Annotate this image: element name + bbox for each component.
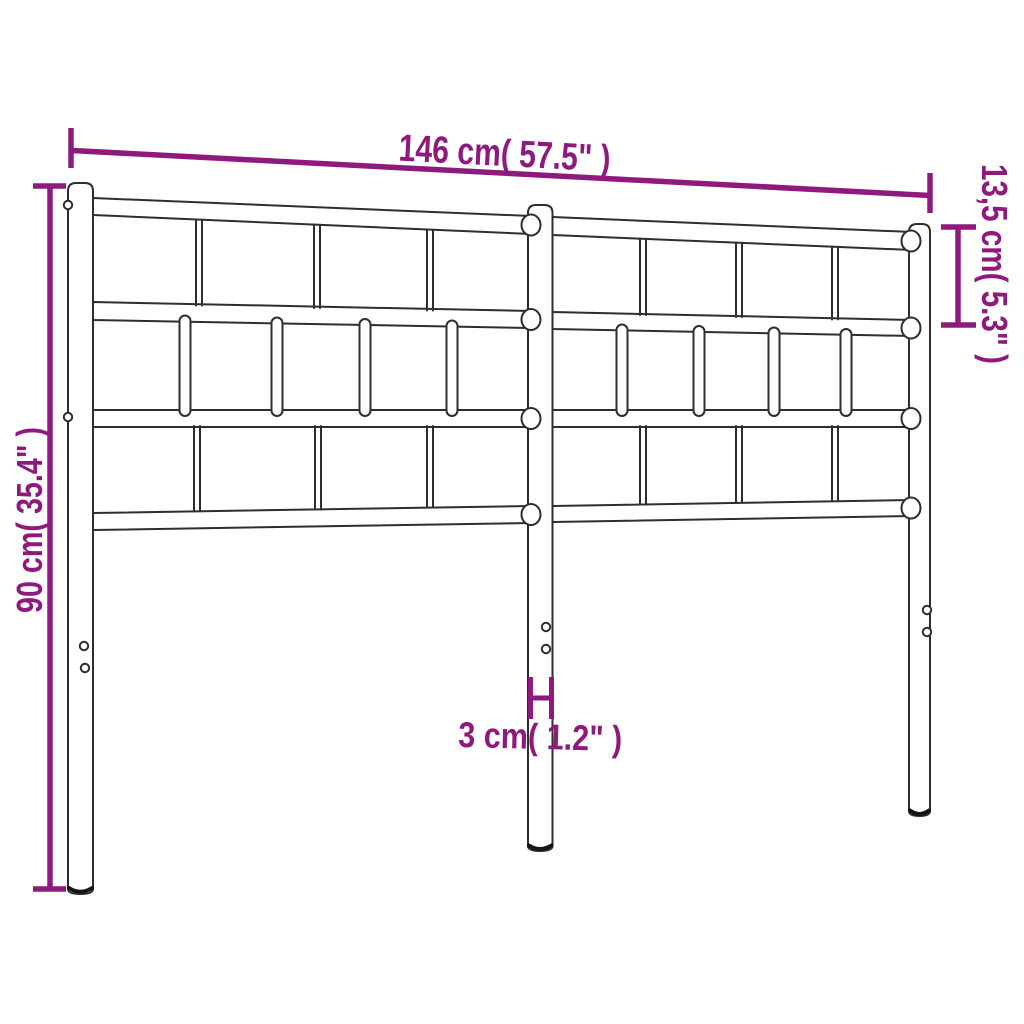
top-section-label: 13,5 cm( 5.3" ) bbox=[974, 164, 1015, 364]
screw-hole bbox=[64, 413, 72, 421]
width-label: 146 cm( 57.5" ) bbox=[398, 127, 612, 180]
rail-end-cap bbox=[522, 504, 541, 525]
rail-end-cap bbox=[902, 318, 921, 339]
rail bbox=[553, 500, 913, 522]
rail-end-cap bbox=[522, 408, 541, 429]
dimension-top-section bbox=[941, 227, 976, 325]
post-width-label: 3 cm( 1.2" ) bbox=[458, 714, 623, 759]
screw-hole bbox=[81, 664, 89, 672]
slats-bottom-row bbox=[194, 426, 838, 512]
rail-end-cap bbox=[522, 309, 541, 330]
left-post bbox=[68, 183, 93, 894]
rail bbox=[93, 198, 531, 234]
rail bbox=[93, 506, 531, 530]
headboard-posts bbox=[68, 183, 930, 894]
screw-hole bbox=[923, 628, 931, 636]
rail-end-cap bbox=[522, 215, 541, 236]
screw-hole bbox=[542, 623, 550, 631]
rails-left-half bbox=[93, 198, 541, 530]
screw-hole bbox=[923, 606, 931, 614]
right-post bbox=[909, 224, 930, 816]
rail-end-cap bbox=[902, 231, 921, 252]
screw-hole bbox=[542, 645, 550, 653]
rail-end-cap bbox=[902, 408, 921, 429]
headboard-drawing bbox=[64, 183, 931, 894]
screw-hole bbox=[80, 642, 88, 650]
rail bbox=[553, 410, 913, 427]
screw-hole bbox=[64, 201, 72, 209]
rail bbox=[93, 302, 531, 328]
height-label: 90 cm( 35.4" ) bbox=[9, 427, 50, 613]
rail bbox=[93, 410, 531, 427]
headboard-diagram-canvas: 146 cm( 57.5" ) 90 cm( 35.4" ) 13,5 cm( … bbox=[0, 0, 1024, 1024]
rail bbox=[553, 312, 913, 336]
product-dimension-diagram: 146 cm( 57.5" ) 90 cm( 35.4" ) 13,5 cm( … bbox=[0, 0, 1024, 1024]
rail-end-cap bbox=[902, 498, 921, 519]
rail bbox=[553, 217, 913, 250]
